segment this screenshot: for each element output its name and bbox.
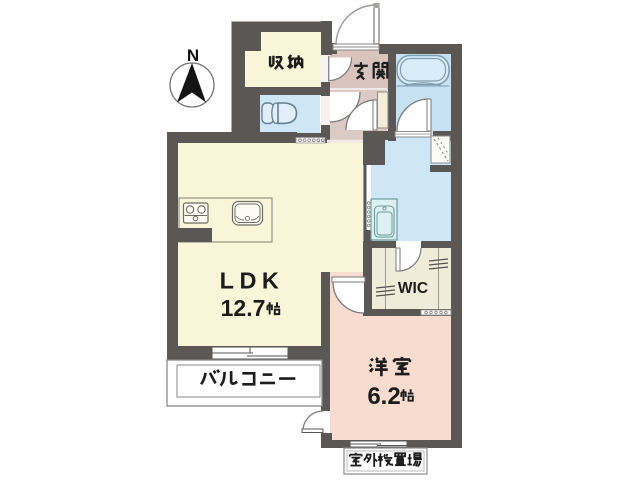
- svg-text:WIC: WIC: [398, 280, 428, 297]
- svg-text:LDK: LDK: [220, 268, 285, 294]
- svg-text:N: N: [187, 46, 199, 65]
- svg-text:6.2: 6.2: [367, 383, 400, 410]
- svg-text:12.7: 12.7: [221, 295, 266, 321]
